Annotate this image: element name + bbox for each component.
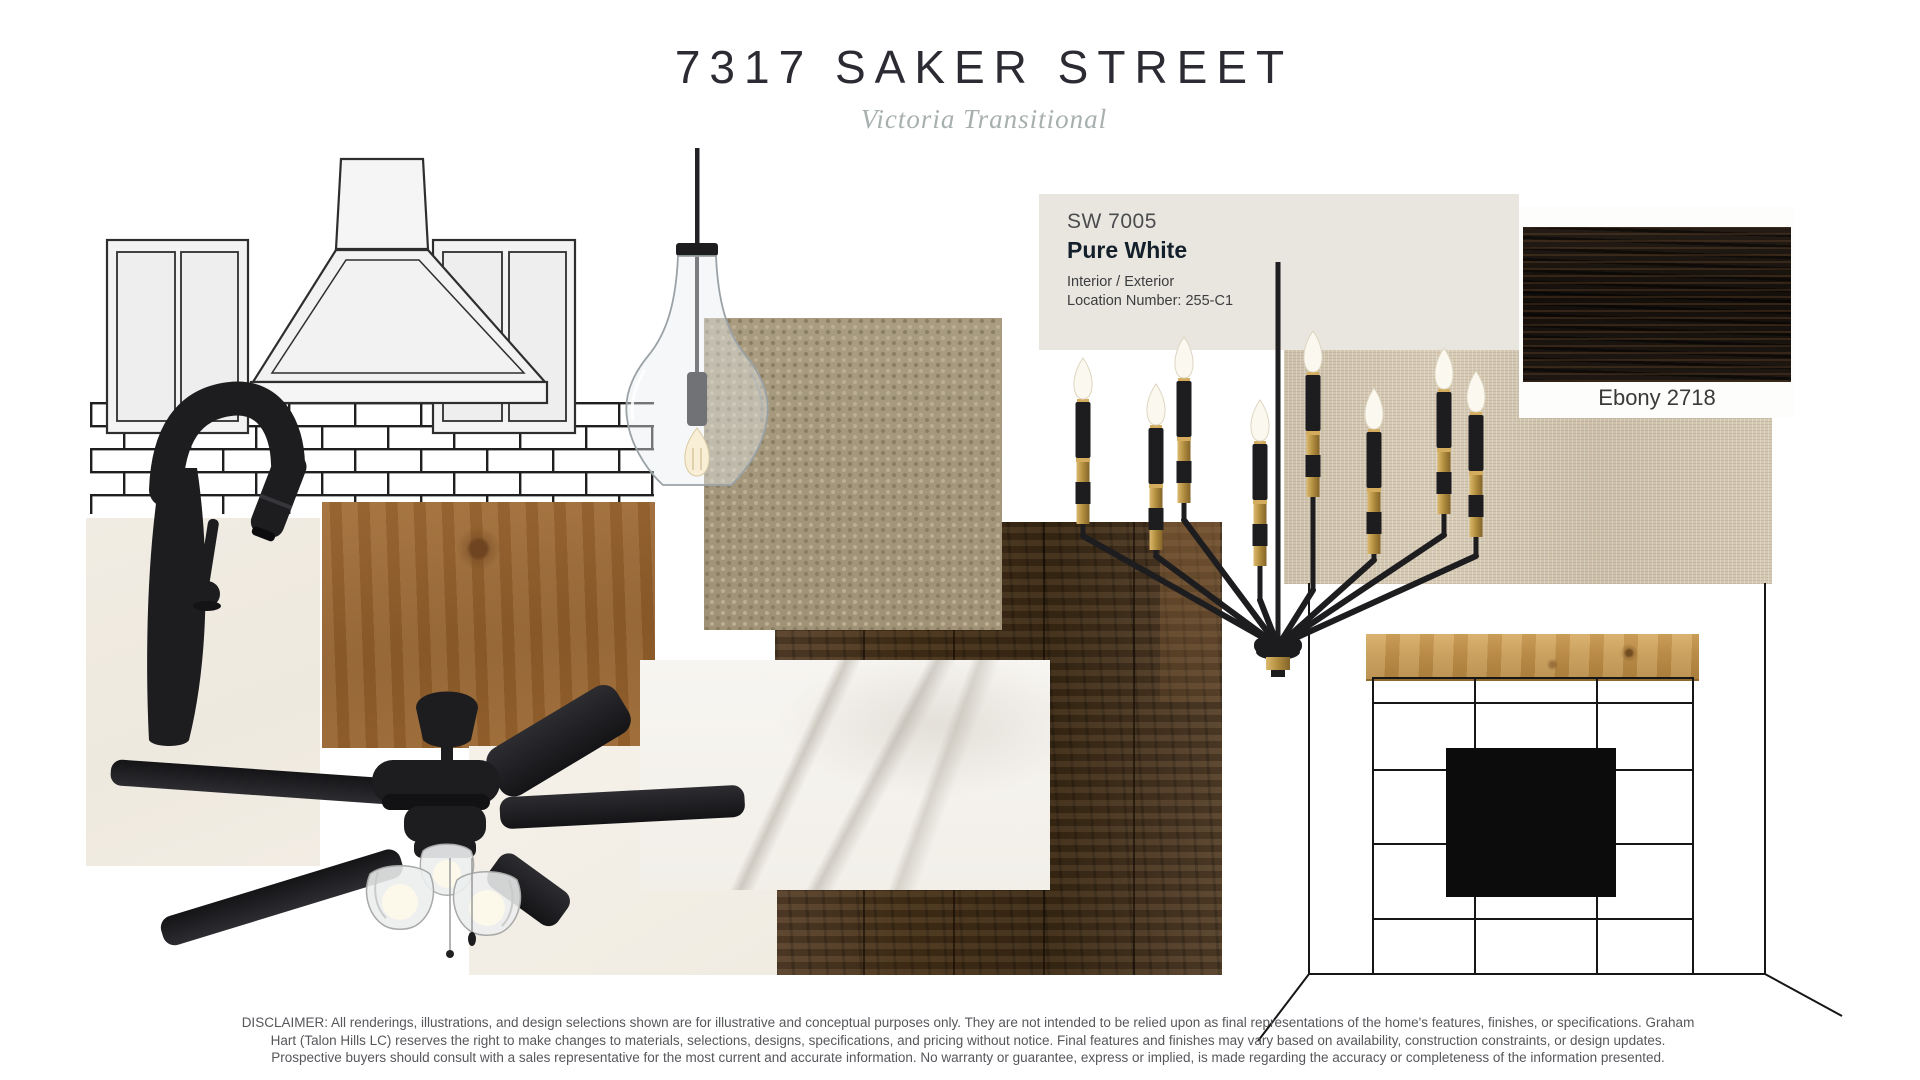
disclaimer-line-1: DISCLAIMER: All renderings, illustration… (16, 1014, 1920, 1032)
disclaimer-line-2: Hart (Talon Hills LC) reserves the right… (16, 1032, 1920, 1050)
disclaimer: DISCLAIMER: All renderings, illustration… (0, 1014, 1920, 1067)
mood-board: SW 7005 Pure White Interior / Exterior L… (0, 0, 1920, 1080)
black-brass-chandelier (1074, 262, 1485, 677)
disclaimer-line-3: Prospective buyers should consult with a… (16, 1049, 1920, 1067)
black-ceiling-fan (110, 679, 746, 958)
fixtures-artwork (0, 0, 1920, 1080)
black-faucet (147, 399, 310, 746)
glass-pendant-light (626, 148, 767, 485)
board-title: 7317 SAKER STREET (48, 40, 1920, 94)
board-subtitle: Victoria Transitional (48, 104, 1920, 135)
fireplace-insert (1446, 748, 1616, 897)
